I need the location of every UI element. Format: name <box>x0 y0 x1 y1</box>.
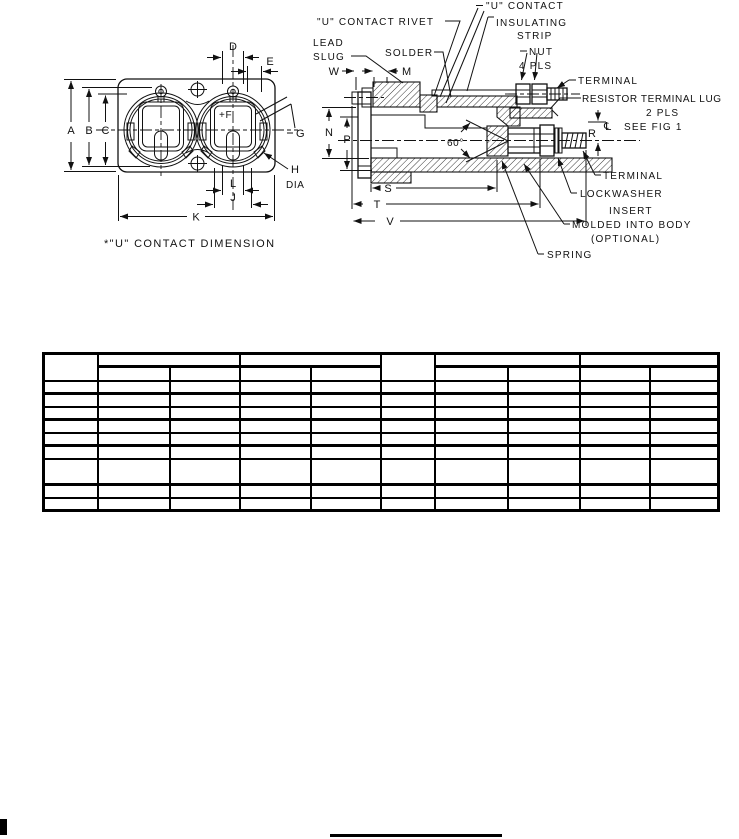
table-cell <box>240 394 311 407</box>
table-cell <box>435 485 508 498</box>
table-cell <box>435 420 508 433</box>
dim-label-d: D <box>229 41 237 53</box>
label-insulating: INSULATING <box>496 18 567 29</box>
table-cell <box>650 394 719 407</box>
table-cell <box>311 420 381 433</box>
table-cell <box>580 394 650 407</box>
table-cell <box>240 446 311 459</box>
label-slug: SLUG <box>313 52 345 63</box>
table-row <box>44 446 719 459</box>
label-terminal-top: TERMINAL <box>578 76 638 87</box>
table-cell <box>381 498 435 511</box>
table-cell <box>650 446 719 459</box>
table-cell <box>381 433 435 446</box>
table-cell <box>98 498 170 511</box>
table-row <box>44 407 719 420</box>
table-cell <box>44 433 98 446</box>
label-u-contact-rivet: "U" CONTACT RIVET <box>317 17 434 28</box>
label-insert-3: (OPTIONAL) <box>591 234 660 245</box>
dim-label-w: W <box>329 66 340 78</box>
table-cell <box>381 420 435 433</box>
face-view-caption: *"U" CONTACT DIMENSION <box>104 238 275 250</box>
table-cell <box>240 459 311 485</box>
table-cell <box>311 446 381 459</box>
table-cell <box>240 485 311 498</box>
footer-rule <box>330 834 502 837</box>
table-cell <box>650 459 719 485</box>
dim-label-l: L <box>230 178 236 190</box>
table-cell <box>44 354 98 381</box>
label-lead: LEAD <box>313 38 344 49</box>
table-cell <box>580 459 650 485</box>
dimension-table-wrap <box>42 352 720 512</box>
table-cell <box>580 485 650 498</box>
table-cell <box>381 354 435 381</box>
table-cell <box>381 446 435 459</box>
label-solder: SOLDER <box>385 48 433 59</box>
label-resistor-qty: 2 PLS <box>646 108 679 119</box>
table-cell <box>381 381 435 394</box>
table-cell <box>580 407 650 420</box>
table-row <box>44 420 719 433</box>
dim-label-b: B <box>85 125 92 137</box>
table-cell <box>650 367 719 381</box>
label-u-contact: "U" CONTACT <box>486 1 564 12</box>
table-cell <box>580 433 650 446</box>
table-cell <box>170 381 240 394</box>
table-cell <box>650 420 719 433</box>
table-cell <box>170 485 240 498</box>
table-cell <box>311 394 381 407</box>
dim-label-h: H <box>291 164 299 176</box>
label-insert: INSERT <box>609 206 653 217</box>
technical-drawing: A B C D E +F G H DIA L <box>0 0 739 348</box>
dim-label-r: R <box>588 128 596 140</box>
table-cell <box>170 446 240 459</box>
table-row <box>44 459 719 485</box>
table-cell <box>170 367 240 381</box>
dimension-table-body <box>44 354 719 511</box>
table-cell <box>170 407 240 420</box>
table-cell <box>435 459 508 485</box>
table-cell <box>311 433 381 446</box>
table-cell <box>44 459 98 485</box>
table-cell <box>580 498 650 511</box>
table-cell <box>650 498 719 511</box>
table-cell <box>170 459 240 485</box>
dim-label-m: M <box>402 66 411 78</box>
dim-label-v: V <box>386 216 394 228</box>
table-cell <box>381 485 435 498</box>
table-row <box>44 394 719 407</box>
table-row <box>44 498 719 511</box>
table-cell <box>650 433 719 446</box>
label-spring: SPRING <box>547 250 593 261</box>
table-cell <box>98 485 170 498</box>
label-insert-2: MOLDED INTO BODY <box>572 220 692 231</box>
table-cell <box>240 498 311 511</box>
dim-label-a: A <box>67 125 75 137</box>
table-cell <box>650 407 719 420</box>
table-cell <box>435 354 580 367</box>
table-cell <box>170 433 240 446</box>
dim-label-s: S <box>384 183 391 195</box>
table-cell <box>240 407 311 420</box>
table-cell <box>44 407 98 420</box>
table-cell <box>435 498 508 511</box>
table-cell <box>98 433 170 446</box>
table-cell <box>170 498 240 511</box>
label-strip: STRIP <box>517 31 552 42</box>
table-row <box>44 381 719 394</box>
table-cell <box>240 420 311 433</box>
table-cell <box>508 446 580 459</box>
dim-label-g: G <box>296 128 305 140</box>
table-cell <box>508 367 580 381</box>
table-cell <box>240 354 381 367</box>
table-cell <box>98 394 170 407</box>
table-cell <box>381 394 435 407</box>
table-cell <box>44 446 98 459</box>
table-cell <box>44 394 98 407</box>
dim-label-e: E <box>266 56 273 68</box>
dim-label-p: P <box>343 134 350 146</box>
dim-label-h-dia: DIA <box>286 180 304 191</box>
table-cell <box>98 367 170 381</box>
dim-label-k: K <box>192 212 200 224</box>
table-cell <box>44 420 98 433</box>
table-cell <box>98 459 170 485</box>
table-cell <box>311 498 381 511</box>
table-cell <box>240 433 311 446</box>
scan-mark-left-margin <box>0 819 7 835</box>
dim-label-c: C <box>102 125 110 137</box>
table-cell <box>508 498 580 511</box>
table-cell <box>240 367 311 381</box>
label-nut-qty: 4 PLS <box>519 61 552 72</box>
table-cell <box>44 485 98 498</box>
table-cell <box>170 420 240 433</box>
label-resistor-lug: RESISTOR TERMINAL LUG <box>582 94 722 105</box>
table-cell <box>381 407 435 420</box>
table-cell <box>650 485 719 498</box>
table-cell <box>98 407 170 420</box>
table-cell <box>44 498 98 511</box>
table-cell <box>435 381 508 394</box>
table-cell <box>508 420 580 433</box>
dim-label-j: J <box>230 192 236 204</box>
table-cell <box>311 367 381 381</box>
dim-label-f: +F <box>219 110 232 121</box>
label-nut: NUT <box>529 47 553 58</box>
table-cell <box>508 459 580 485</box>
table-cell <box>311 381 381 394</box>
table-cell <box>311 485 381 498</box>
table-cell <box>435 446 508 459</box>
table-cell <box>580 446 650 459</box>
label-terminal-bottom: TERMINAL <box>603 171 663 182</box>
table-row <box>44 485 719 498</box>
table-cell <box>580 420 650 433</box>
table-cell <box>98 446 170 459</box>
table-cell <box>435 433 508 446</box>
table-cell <box>98 381 170 394</box>
drawing-sheet: A B C D E +F G H DIA L <box>0 0 739 839</box>
table-cell <box>508 433 580 446</box>
table-cell <box>240 381 311 394</box>
table-cell <box>650 381 719 394</box>
angle-label: 60° <box>447 138 464 149</box>
table-cell <box>580 367 650 381</box>
dim-label-n: N <box>325 127 333 139</box>
table-cell <box>44 381 98 394</box>
table-cell <box>98 420 170 433</box>
table-cell <box>311 407 381 420</box>
table-cell <box>435 394 508 407</box>
see-fig-note: SEE FIG 1 <box>624 122 683 133</box>
table-cell <box>98 354 240 367</box>
centerline-symbol: ℄ <box>603 120 611 133</box>
table-cell <box>508 485 580 498</box>
table-row <box>44 354 719 367</box>
table-cell <box>381 459 435 485</box>
table-cell <box>311 459 381 485</box>
table-cell <box>508 394 580 407</box>
table-cell <box>170 394 240 407</box>
face-view-drawing: A B C D E +F G H DIA L <box>64 41 305 250</box>
table-row <box>44 433 719 446</box>
table-cell <box>508 381 580 394</box>
table-cell <box>435 407 508 420</box>
table-cell <box>580 354 719 367</box>
section-view-drawing: W M N P R ℄ SEE FIG 1 60° S T <box>313 1 722 261</box>
table-cell <box>435 367 508 381</box>
dimension-table <box>42 352 720 512</box>
dim-label-t: T <box>374 199 381 211</box>
table-cell <box>580 381 650 394</box>
table-cell <box>508 407 580 420</box>
label-lockwasher: LOCKWASHER <box>580 189 663 200</box>
